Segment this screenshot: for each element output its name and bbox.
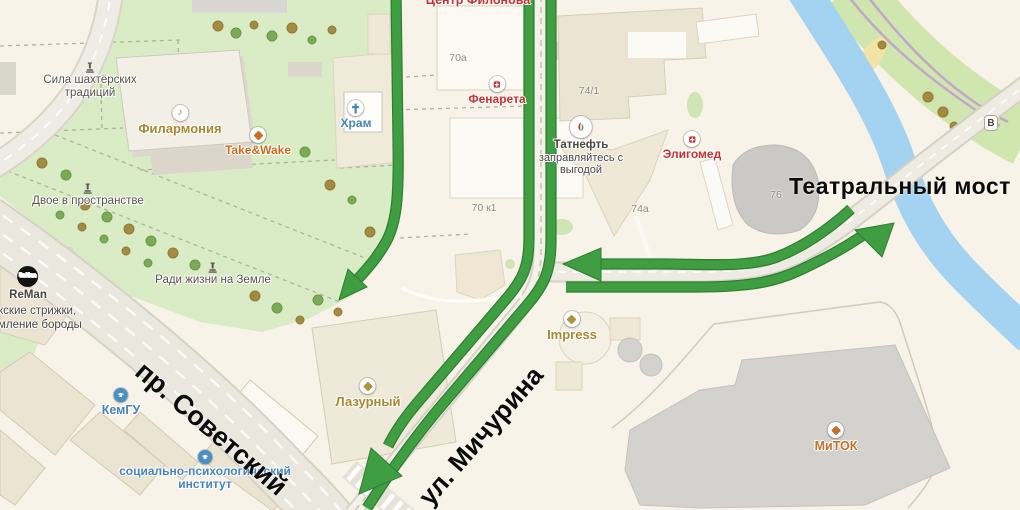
poi-eligomed[interactable]: Элигомед <box>663 131 721 161</box>
building <box>192 0 287 13</box>
poi-impress[interactable]: Impress <box>547 311 597 343</box>
leisure-icon <box>564 311 580 327</box>
poi-fenareta[interactable]: Фенарета <box>468 76 525 106</box>
poi-reman[interactable]: ReMan ReMan <box>9 266 47 302</box>
shop-icon <box>828 422 844 438</box>
house-number: 76 <box>770 189 782 201</box>
poi-church[interactable]: Храм <box>341 100 372 130</box>
building <box>368 14 390 54</box>
house-number: 74/1 <box>579 85 599 97</box>
annotation-bridge-name: Театральный мост <box>789 173 1011 200</box>
building <box>0 62 16 95</box>
poi-label: Храм <box>341 117 372 130</box>
poi-label: Двое в пространстве <box>32 195 144 208</box>
poi-label: Сила шахтёрских <box>43 74 136 87</box>
cafe-icon <box>250 127 266 143</box>
building <box>618 338 642 362</box>
poi-kemgu[interactable]: КемГУ <box>102 388 141 417</box>
building <box>640 354 662 376</box>
poi-tatneft[interactable]: Татнефть заправляйтесь с выгодой <box>539 116 623 177</box>
poi-label: Ради жизни на Земле <box>155 274 271 287</box>
reman-logo: ReMan <box>17 266 38 287</box>
house-number: 70 к1 <box>471 202 496 214</box>
poi-centr-filonova[interactable]: Центр Филонова <box>426 0 530 7</box>
map-canvas[interactable]: Сила шахтёрских традиций Двое в простран… <box>0 0 1020 510</box>
road-shield: В <box>984 115 998 131</box>
poi-philharmonic[interactable]: ♪ Филармония <box>138 105 221 137</box>
poi-label: МиТОК <box>815 439 858 453</box>
poi-label: Impress <box>547 328 597 343</box>
house-number: 74а <box>631 203 649 215</box>
poi-label: КемГУ <box>102 403 141 417</box>
poi-take-and-wake[interactable]: Take&Wake <box>225 127 291 157</box>
poi-label: Лазурный <box>336 395 401 410</box>
poi-radi-zhizni-na-zemle[interactable]: Ради жизни на Земле <box>155 262 271 287</box>
poi-mitok[interactable]: МиТОК <box>815 422 858 453</box>
building <box>288 62 322 77</box>
poi-label: Take&Wake <box>225 144 291 157</box>
poi-label: ReMan <box>9 289 47 302</box>
poi-label: традиций <box>65 87 116 100</box>
poi-subtitle: выгодой <box>560 164 602 176</box>
poi-label: Фенарета <box>468 93 525 106</box>
poi-label: институт <box>178 478 231 491</box>
music-icon: ♪ <box>172 105 188 121</box>
house-number: 70а <box>449 52 467 64</box>
university-icon <box>198 450 212 464</box>
medical-icon <box>684 131 700 147</box>
church-cross-icon <box>348 100 364 116</box>
poi-label: Центр Филонова <box>426 0 530 7</box>
poi-dvoe-v-prostranstve[interactable]: Двое в пространстве <box>32 183 144 208</box>
poi-label: Татнефть <box>554 139 609 152</box>
building <box>628 32 686 58</box>
poi-reman-description: кские стрижки, мление бороды <box>0 305 82 332</box>
poi-subtitle: заправляйтесь с <box>539 152 623 164</box>
poi-label: Элигомед <box>663 148 721 161</box>
building <box>610 318 640 340</box>
leisure-icon <box>360 378 376 394</box>
poi-lazurny[interactable]: Лазурный <box>336 378 401 410</box>
building <box>556 362 582 390</box>
university-icon <box>114 388 128 402</box>
monument-icon <box>84 62 95 74</box>
poi-sila-shakhtyorskikh-traditsiy[interactable]: Сила шахтёрских традиций <box>43 62 136 100</box>
poi-label: Филармония <box>138 122 221 137</box>
monument-icon <box>82 183 93 195</box>
shop-icon <box>489 76 505 92</box>
tatneft-logo-icon <box>570 116 592 138</box>
monument-icon <box>207 262 218 274</box>
